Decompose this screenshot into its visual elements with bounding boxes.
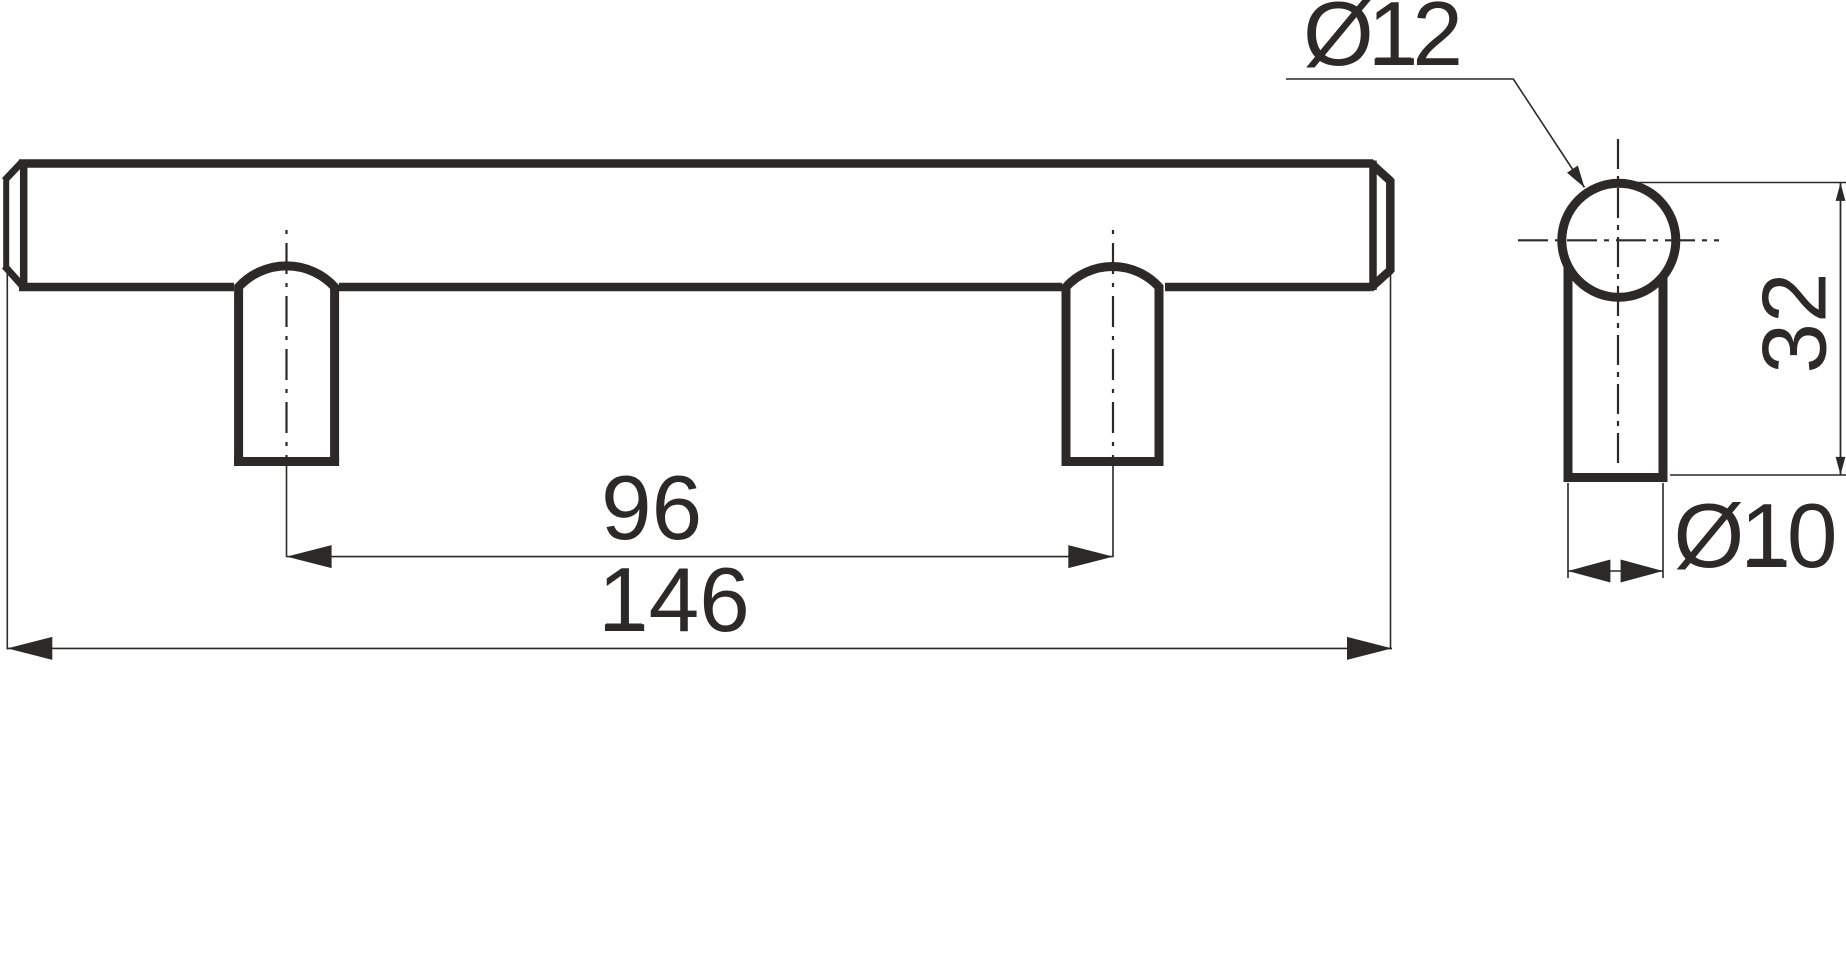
svg-text:146: 146	[598, 550, 750, 651]
svg-text:32: 32	[1745, 272, 1846, 373]
svg-text:Ø10: Ø10	[1674, 486, 1838, 587]
svg-text:Ø12: Ø12	[1303, 0, 1463, 85]
svg-text:96: 96	[601, 458, 702, 559]
